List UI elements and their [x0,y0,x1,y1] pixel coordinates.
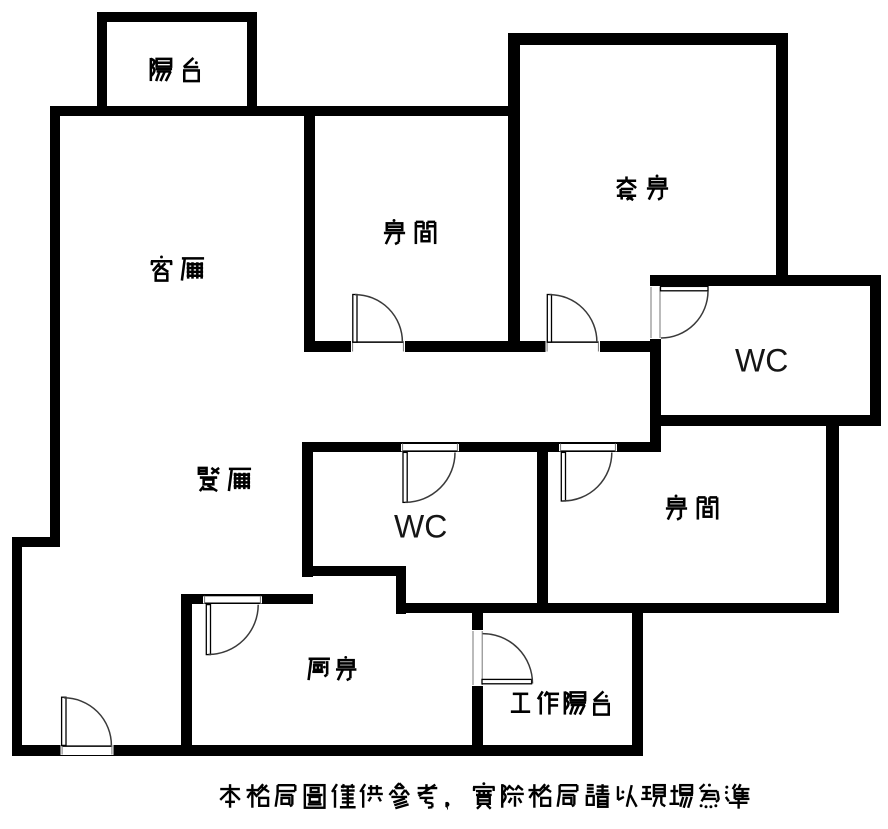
svg-text:WC: WC [394,509,447,545]
svg-text:WC: WC [735,343,788,379]
